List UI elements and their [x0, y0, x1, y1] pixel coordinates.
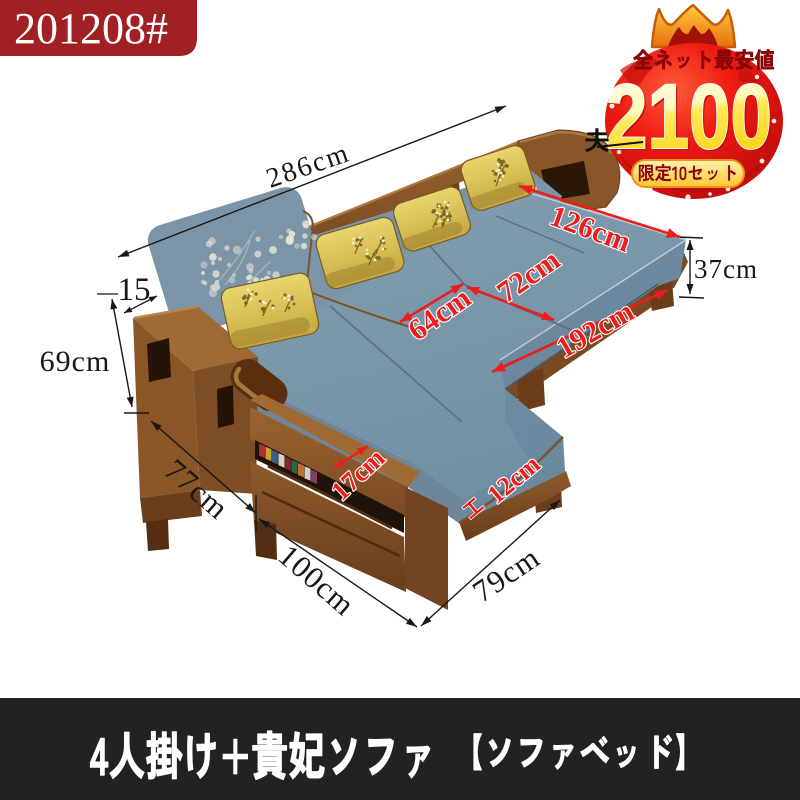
- svg-text:201208#: 201208#: [14, 4, 168, 53]
- svg-text:2100: 2100: [606, 66, 772, 168]
- svg-text:69cm: 69cm: [40, 345, 111, 378]
- svg-text:37cm: 37cm: [694, 254, 758, 284]
